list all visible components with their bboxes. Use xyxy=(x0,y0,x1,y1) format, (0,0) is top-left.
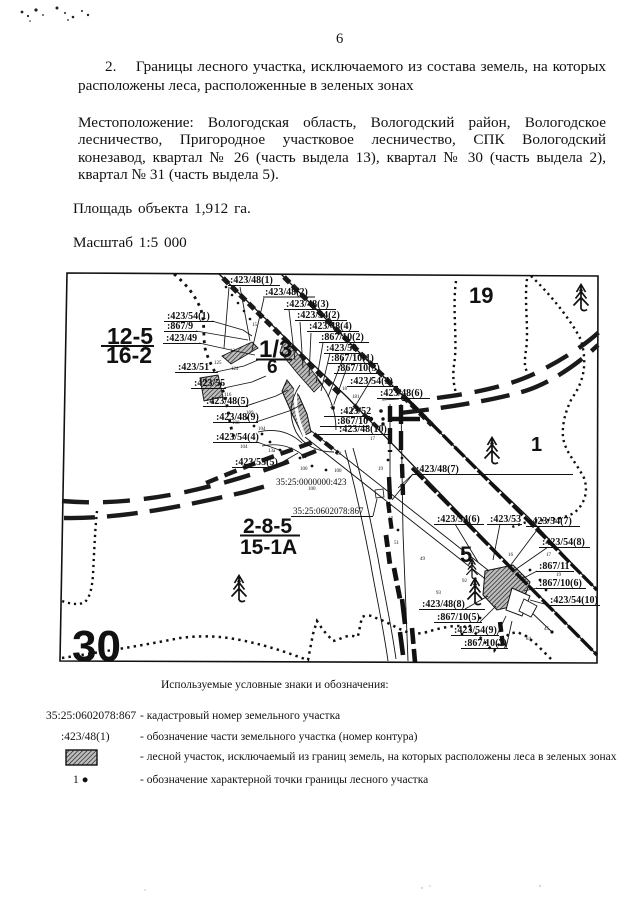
svg-text::423/48(9): :423/48(9) xyxy=(216,412,259,423)
svg-text:45: 45 xyxy=(544,627,550,632)
svg-text:19: 19 xyxy=(378,467,384,472)
svg-text::423/55: :423/55 xyxy=(194,378,225,389)
svg-text:35:25:0602078:867: 35:25:0602078:867 xyxy=(293,506,364,516)
svg-text::423/51: :423/51 xyxy=(178,362,209,373)
svg-text::423/48(5): :423/48(5) xyxy=(206,396,249,407)
svg-text:17: 17 xyxy=(546,553,552,558)
svg-text:16-2: 16-2 xyxy=(106,342,152,368)
svg-text:17: 17 xyxy=(370,437,376,442)
svg-text:30: 30 xyxy=(72,622,121,671)
svg-text:181: 181 xyxy=(352,395,360,400)
svg-text:13: 13 xyxy=(259,315,265,320)
svg-text::867/10(5): :867/10(5) xyxy=(437,612,480,623)
svg-text::423/53: :423/53 xyxy=(490,514,521,525)
svg-text::423/48(7): :423/48(7) xyxy=(416,464,459,475)
svg-text:6: 6 xyxy=(267,357,278,378)
svg-text::423/54(3): :423/54(3) xyxy=(350,376,393,387)
svg-text:18: 18 xyxy=(342,387,348,392)
svg-text::867/10(3): :867/10(3) xyxy=(337,363,380,374)
svg-text:124: 124 xyxy=(231,367,239,372)
svg-text::867/9: :867/9 xyxy=(167,321,193,332)
svg-text:17: 17 xyxy=(388,517,394,522)
svg-text:100: 100 xyxy=(334,469,342,474)
svg-text:104: 104 xyxy=(240,445,248,450)
svg-text:25: 25 xyxy=(330,405,336,410)
svg-text::423/55(5): :423/55(5) xyxy=(235,457,278,468)
svg-text:19: 19 xyxy=(469,283,493,308)
svg-text::423/48(8): :423/48(8) xyxy=(422,599,465,610)
svg-text::867/10(6): :867/10(6) xyxy=(539,578,582,589)
svg-text::423/48(10): :423/48(10) xyxy=(339,424,387,435)
svg-text:92: 92 xyxy=(462,579,468,584)
svg-text:12: 12 xyxy=(230,349,236,354)
svg-text::867/10(2): :867/10(2) xyxy=(321,332,364,343)
svg-text:84: 84 xyxy=(526,637,532,642)
svg-text::423/48(4): :423/48(4) xyxy=(309,321,352,332)
svg-text::867/11: :867/11 xyxy=(539,561,570,572)
svg-text::423/54(10): :423/54(10) xyxy=(550,595,598,606)
svg-text:49: 49 xyxy=(420,557,426,562)
svg-text:93: 93 xyxy=(436,591,442,596)
svg-text:1: 1 xyxy=(531,434,542,456)
svg-text:125: 125 xyxy=(214,361,222,366)
svg-text:48: 48 xyxy=(336,452,342,457)
svg-text::867/10(7): :867/10(7) xyxy=(464,638,507,649)
svg-text::423/48(1): :423/48(1) xyxy=(230,275,273,286)
svg-text:100: 100 xyxy=(300,467,308,472)
svg-text::423/54(8): :423/54(8) xyxy=(542,537,585,548)
svg-text::423/54(2): :423/54(2) xyxy=(297,310,340,321)
svg-text:16: 16 xyxy=(508,553,514,558)
svg-text:100: 100 xyxy=(308,487,316,492)
svg-text::423/54(7): :423/54(7) xyxy=(529,516,572,527)
svg-text::423/54(4): :423/54(4) xyxy=(216,432,259,443)
svg-text:15: 15 xyxy=(252,323,258,328)
svg-text:51: 51 xyxy=(394,541,400,546)
svg-text:5: 5 xyxy=(460,542,472,567)
svg-text:15-1А: 15-1А xyxy=(240,536,297,559)
svg-text:104: 104 xyxy=(258,427,266,432)
svg-text::423/54(9): :423/54(9) xyxy=(454,625,497,636)
svg-text:35:25:0000000:423: 35:25:0000000:423 xyxy=(276,477,347,487)
svg-text::423/48(6): :423/48(6) xyxy=(380,388,423,399)
svg-text:13а: 13а xyxy=(268,449,276,454)
svg-text::423/54(6): :423/54(6) xyxy=(437,514,480,525)
svg-text::423/48(2): :423/48(2) xyxy=(265,287,308,298)
svg-text::423/48(3): :423/48(3) xyxy=(286,299,329,310)
svg-text::423/49: :423/49 xyxy=(166,333,197,344)
